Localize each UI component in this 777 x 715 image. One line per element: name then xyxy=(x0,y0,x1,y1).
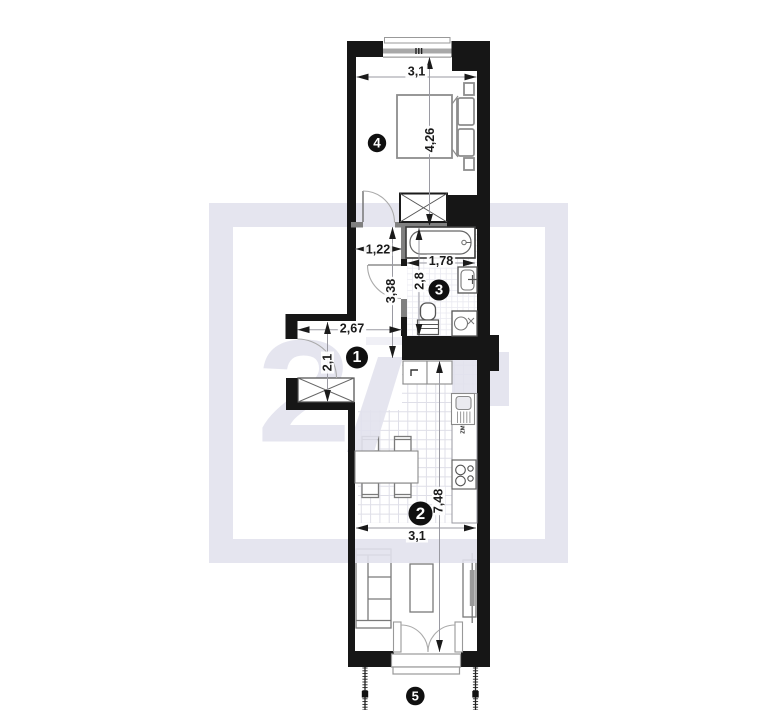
svg-text:1,78: 1,78 xyxy=(429,254,454,268)
svg-text:ZM: ZM xyxy=(461,425,467,434)
svg-text:7,48: 7,48 xyxy=(432,489,446,514)
svg-text:2: 2 xyxy=(416,504,425,523)
svg-text:4: 4 xyxy=(373,136,381,151)
svg-text:3: 3 xyxy=(435,282,443,299)
svg-text:2,8: 2,8 xyxy=(413,272,427,290)
svg-text:2,1: 2,1 xyxy=(321,354,335,372)
svg-text:1,22: 1,22 xyxy=(366,243,391,257)
svg-text:3,1: 3,1 xyxy=(408,529,426,543)
svg-text:3,38: 3,38 xyxy=(384,279,398,304)
svg-text:1: 1 xyxy=(353,349,362,366)
svg-text:2,67: 2,67 xyxy=(340,321,365,335)
svg-text:5: 5 xyxy=(412,689,419,704)
svg-text:4,26: 4,26 xyxy=(423,128,437,153)
svg-text:3,1: 3,1 xyxy=(408,65,426,79)
